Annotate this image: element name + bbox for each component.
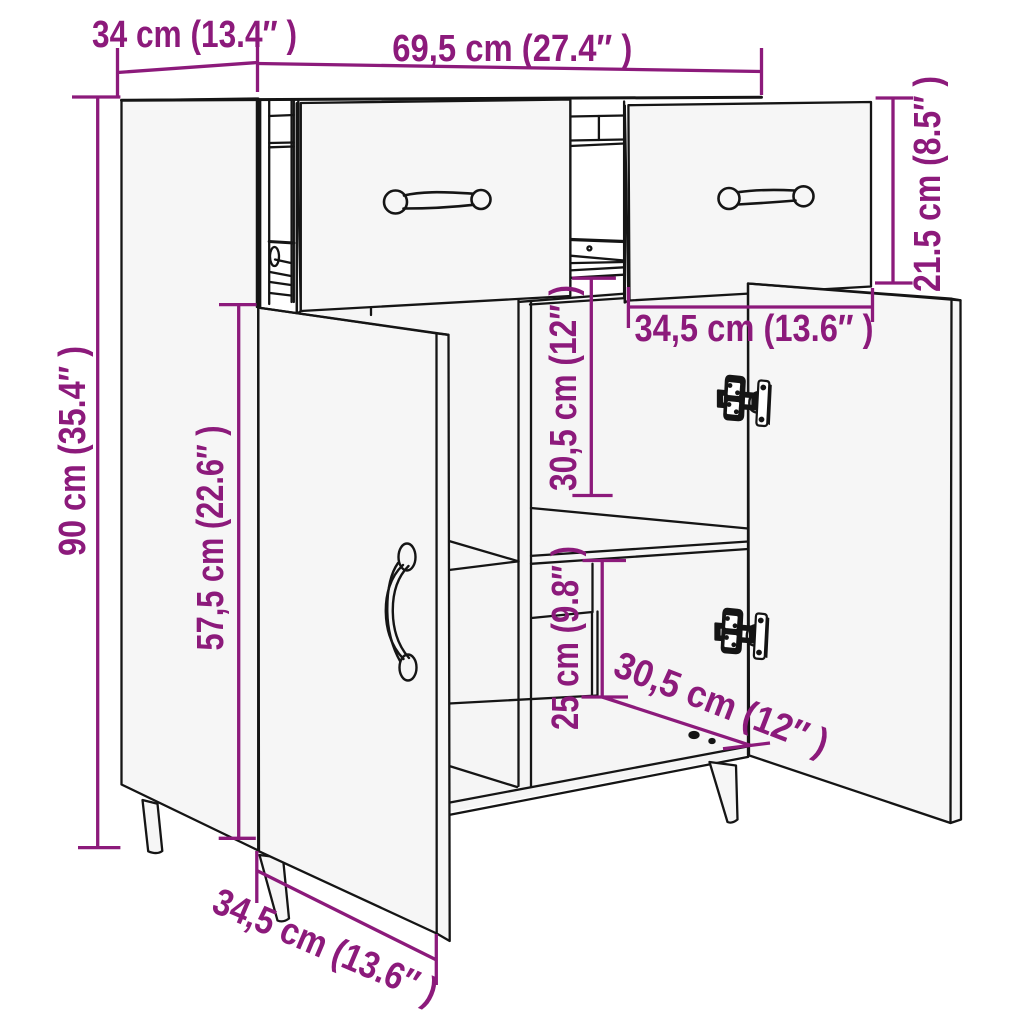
- svg-text:34,5 cm (13.6″ ): 34,5 cm (13.6″ ): [635, 308, 874, 350]
- svg-text:21.5 cm (8.5″ ): 21.5 cm (8.5″ ): [907, 76, 949, 292]
- svg-text:30,5 cm (12″ ): 30,5 cm (12″ ): [543, 285, 585, 491]
- svg-text:34 cm (13.4″ ): 34 cm (13.4″ ): [92, 14, 297, 56]
- svg-text:90 cm (35.4″ ): 90 cm (35.4″ ): [52, 346, 94, 556]
- svg-text:25 cm (9.8″ ): 25 cm (9.8″ ): [545, 546, 587, 730]
- svg-text:69,5 cm (27.4″ ): 69,5 cm (27.4″ ): [392, 28, 632, 70]
- svg-text:57,5 cm (22.6″ ): 57,5 cm (22.6″ ): [190, 426, 232, 651]
